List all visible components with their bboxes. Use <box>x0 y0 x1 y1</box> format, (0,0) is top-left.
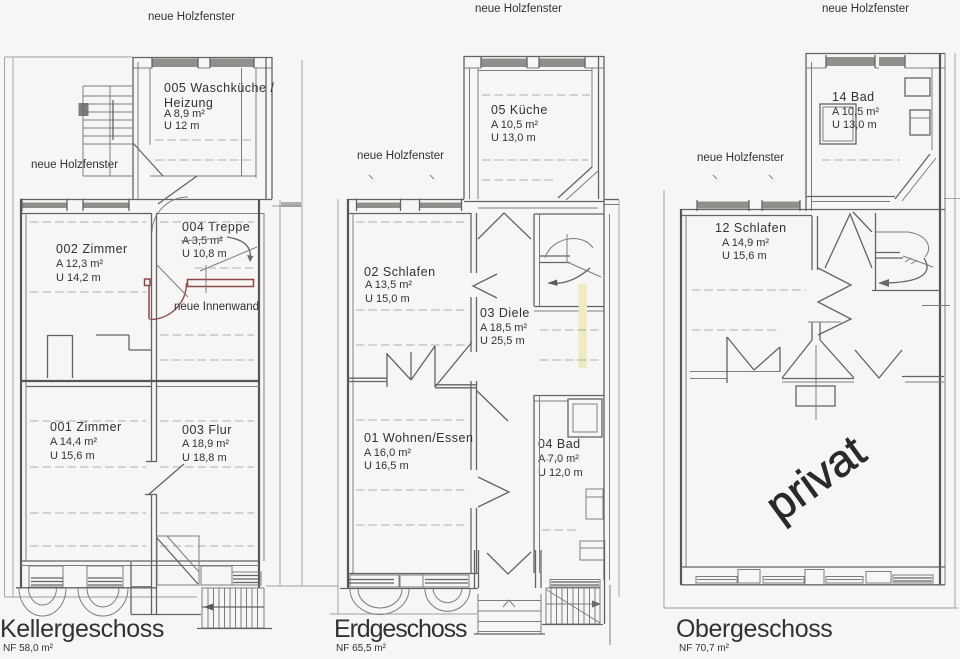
svg-text:A 12,3 m²: A 12,3 m² <box>56 258 103 270</box>
svg-text:U 14,2 m: U 14,2 m <box>56 272 101 284</box>
svg-text:005 Waschküche /: 005 Waschküche / <box>164 81 274 95</box>
svg-text:U 16,5 m: U 16,5 m <box>364 460 409 472</box>
svg-text:NF 65,5 m²: NF 65,5 m² <box>336 643 387 654</box>
svg-text:neue Holzfenster: neue Holzfenster <box>697 152 784 164</box>
svg-text:U 13,0 m: U 13,0 m <box>491 132 536 144</box>
svg-text:01 Wohnen/Essen: 01 Wohnen/Essen <box>364 431 473 445</box>
svg-text:A 14,9 m²: A 14,9 m² <box>722 237 769 249</box>
svg-text:14 Bad: 14 Bad <box>832 90 875 104</box>
svg-text:neue Holzfenster: neue Holzfenster <box>475 3 562 15</box>
svg-text:03 Diele: 03 Diele <box>480 306 530 320</box>
svg-text:A 3,5 m²: A 3,5 m² <box>182 235 223 247</box>
svg-text:A 10,5 m²: A 10,5 m² <box>491 119 538 131</box>
svg-text:U 15,6 m: U 15,6 m <box>50 450 95 462</box>
svg-text:05 Küche: 05 Küche <box>491 103 548 117</box>
svg-text:neue Innenwand: neue Innenwand <box>174 301 259 313</box>
svg-text:A 18,5 m²: A 18,5 m² <box>480 322 527 334</box>
svg-text:neue Holzfenster: neue Holzfenster <box>148 11 235 23</box>
svg-text:U 12 m: U 12 m <box>164 120 199 132</box>
svg-text:U 13,0 m: U 13,0 m <box>832 119 877 131</box>
svg-text:U 18,8 m: U 18,8 m <box>182 452 227 464</box>
svg-text:U 12,0 m: U 12,0 m <box>538 467 583 479</box>
svg-text:A 10,5 m²: A 10,5 m² <box>832 106 879 118</box>
svg-text:02 Schlafen: 02 Schlafen <box>364 265 436 279</box>
svg-text:Obergeschoss: Obergeschoss <box>676 615 832 643</box>
svg-text:NF 70,7 m²: NF 70,7 m² <box>679 643 730 654</box>
svg-text:U 10,8 m: U 10,8 m <box>182 248 227 260</box>
svg-text:U 15,0 m: U 15,0 m <box>365 293 410 305</box>
svg-text:A 18,9 m²: A 18,9 m² <box>182 438 229 450</box>
svg-text:neue Holzfenster: neue Holzfenster <box>31 159 118 171</box>
svg-text:neue Holzfenster: neue Holzfenster <box>822 3 909 15</box>
svg-text:neue Holzfenster: neue Holzfenster <box>357 150 444 162</box>
svg-text:002 Zimmer: 002 Zimmer <box>56 242 128 256</box>
svg-text:A 13,5 m²: A 13,5 m² <box>365 279 412 291</box>
svg-text:A 7,0 m²: A 7,0 m² <box>538 453 579 465</box>
svg-text:003 Flur: 003 Flur <box>182 423 232 437</box>
svg-text:Kellergeschoss: Kellergeschoss <box>0 615 164 643</box>
svg-text:A 16,0 m²: A 16,0 m² <box>364 447 411 459</box>
svg-text:U 15,6 m: U 15,6 m <box>722 250 767 262</box>
svg-text:U 25,5 m: U 25,5 m <box>480 335 525 347</box>
svg-text:12 Schlafen: 12 Schlafen <box>715 221 787 235</box>
svg-text:04 Bad: 04 Bad <box>538 437 581 451</box>
svg-text:Erdgeschoss: Erdgeschoss <box>334 615 467 643</box>
svg-text:001 Zimmer: 001 Zimmer <box>50 420 122 434</box>
svg-text:A 14,4 m²: A 14,4 m² <box>50 436 97 448</box>
svg-text:NF 58,0 m²: NF 58,0 m² <box>3 643 54 654</box>
svg-text:A 8,9 m²: A 8,9 m² <box>164 108 205 120</box>
